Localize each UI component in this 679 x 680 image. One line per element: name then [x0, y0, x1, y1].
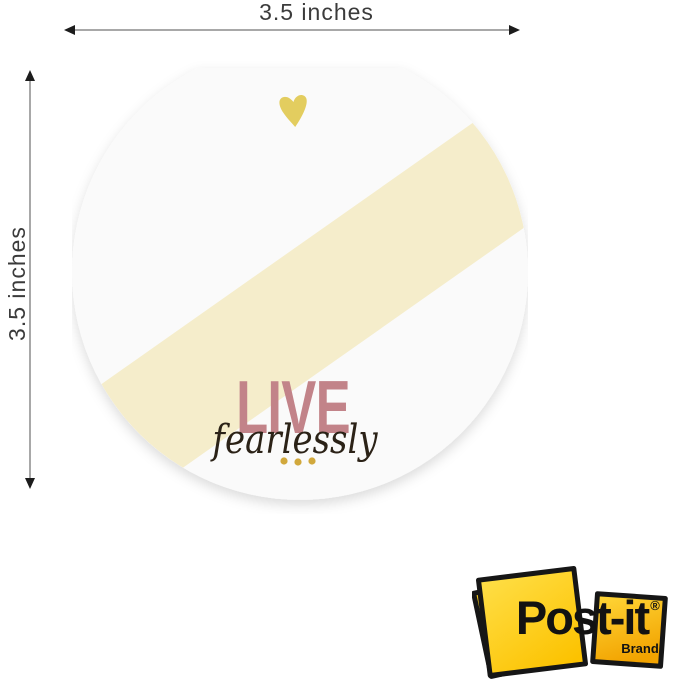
arrow-up-icon — [25, 70, 35, 81]
postit-wordmark: Post-it — [516, 591, 651, 644]
arrow-left-icon — [64, 25, 75, 35]
width-dimension-label: 3.5 inches — [244, 0, 389, 26]
note-subtitle: fearlessly — [210, 416, 379, 462]
registered-mark-icon: ® — [650, 598, 660, 613]
sticky-note: LIVE fearlessly — [72, 44, 528, 514]
height-dimension-line — [29, 76, 31, 482]
product-image: 3.5 inches 3.5 inches LIVE fearlessly — [0, 0, 679, 680]
postit-logo: Post-it ® Brand — [472, 562, 679, 680]
width-dimension-line — [70, 29, 514, 31]
arrow-down-icon — [25, 478, 35, 489]
brand-label: Brand — [621, 641, 659, 656]
arrow-right-icon — [509, 25, 520, 35]
height-dimension-label: 3.5 inches — [4, 211, 31, 356]
